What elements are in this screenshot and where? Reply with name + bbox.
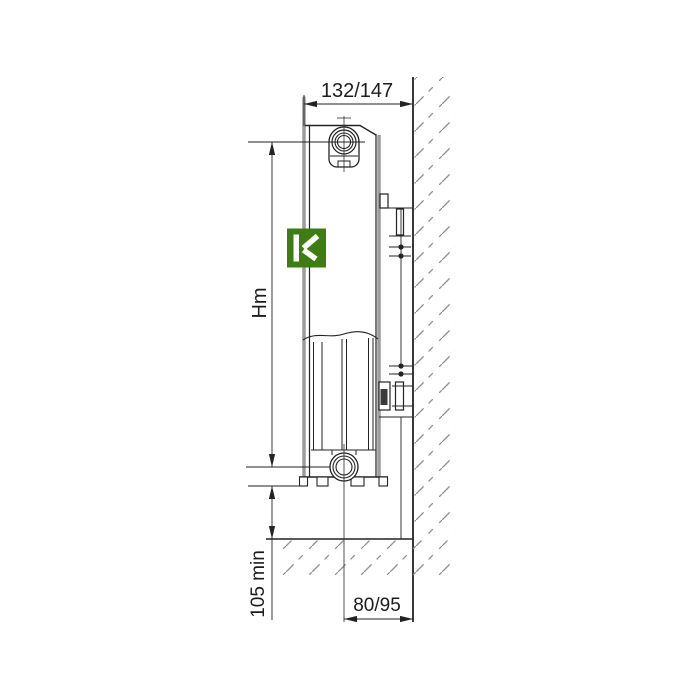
- section-channel-lines: [314, 338, 374, 450]
- arrow-left-icon: [304, 101, 317, 107]
- wall-bracket-upper: [380, 194, 413, 368]
- bracket-clip: [380, 194, 388, 208]
- floor: [266, 539, 454, 578]
- bracket-bar: [397, 209, 404, 235]
- radiator-installation-drawing: 132/147 Hm 105 min 80/95: [0, 0, 700, 700]
- bracket-screw: [398, 244, 403, 249]
- bottom-foot: [379, 477, 388, 486]
- dimension-floor-clearance-label: 105 min: [248, 550, 269, 618]
- section-break-line: [303, 332, 378, 340]
- dimension-height-label: Hm: [249, 287, 271, 318]
- bottom-foot: [300, 477, 308, 486]
- wall-bracket-lower: [379, 363, 413, 539]
- floor-hatching: [278, 541, 454, 578]
- dimension-pipe-to-wall: 80/95: [344, 595, 413, 622]
- dimension-pipe-to-wall-label: 80/95: [353, 595, 401, 616]
- arrow-right-icon: [400, 101, 413, 107]
- arrow-up-icon: [269, 142, 275, 155]
- bracket-screw: [398, 371, 403, 376]
- arrow-left-icon: [344, 616, 357, 622]
- bracket-clip-insert: [381, 389, 388, 405]
- dimension-depth-label: 132/147: [321, 80, 393, 102]
- brand-logo: [287, 229, 326, 268]
- wall-hatching: [415, 77, 455, 538]
- wall: [413, 77, 455, 622]
- bracket-screw: [398, 363, 403, 368]
- arrow-down-icon: [269, 526, 275, 539]
- arrow-right-icon: [400, 616, 413, 622]
- dimension-depth: 132/147: [304, 80, 413, 126]
- drawing-svg: 132/147 Hm 105 min 80/95: [0, 0, 700, 700]
- arrow-up-icon: [269, 486, 275, 499]
- bottom-foot: [317, 477, 328, 486]
- top-valve: [329, 116, 359, 172]
- bracket-screw: [398, 253, 403, 258]
- arrow-down-icon: [269, 454, 275, 467]
